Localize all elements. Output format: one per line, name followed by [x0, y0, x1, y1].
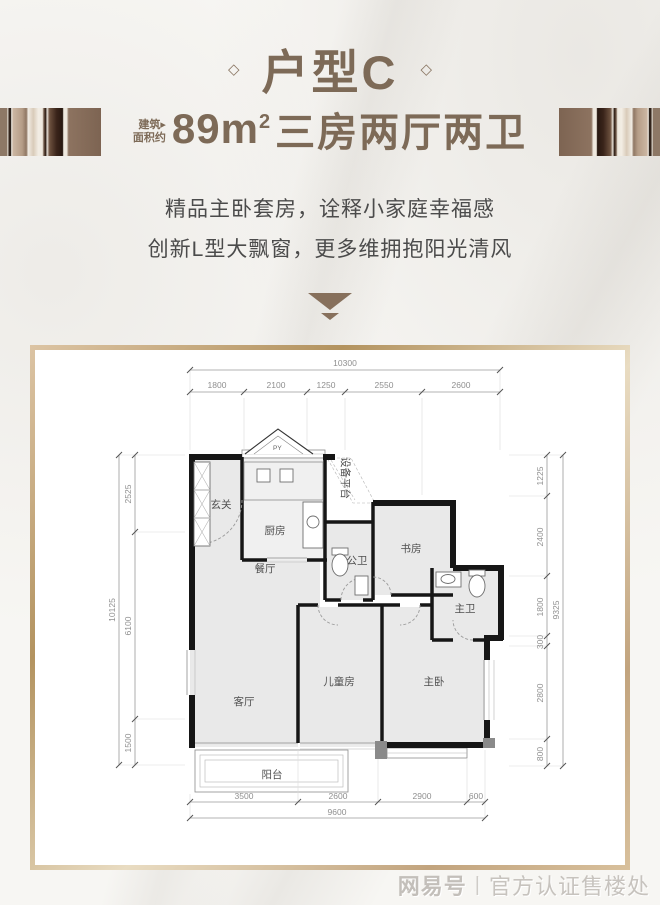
down-arrow-icon [0, 293, 660, 320]
room-label-public-bath: 公卫 [347, 555, 368, 567]
svg-text:10125: 10125 [107, 598, 117, 622]
room-label-entry: 玄关 [211, 498, 232, 511]
svg-text:2525: 2525 [123, 484, 133, 503]
diamond-icon: ◇ [228, 60, 240, 78]
watermark-text: 官方认证售楼处 [489, 869, 650, 901]
room-label-children: 儿童房 [323, 675, 355, 688]
wall-block [375, 741, 387, 759]
page-title-row: ◇ 户型C ◇ [0, 34, 660, 103]
svg-text:1800: 1800 [535, 597, 545, 616]
svg-text:1225: 1225 [535, 466, 545, 485]
svg-text:9600: 9600 [328, 807, 347, 817]
floor-plan-frame: PY [30, 345, 630, 870]
page-title: 户型C [262, 34, 399, 103]
room-label-study: 书房 [401, 542, 422, 555]
svg-text:1500: 1500 [123, 733, 133, 752]
svg-text:300: 300 [535, 635, 545, 649]
area-value: 89m2 [172, 105, 271, 153]
watermark: 网易号 | 官方认证售楼处 [398, 869, 650, 901]
svg-text:2800: 2800 [535, 683, 545, 702]
svg-text:10300: 10300 [333, 358, 357, 368]
room-label-master-bath: 主卫 [455, 603, 476, 615]
wall-block [483, 738, 495, 748]
room-label-balcony: 阳台 [262, 768, 283, 781]
svg-text:3500: 3500 [235, 791, 254, 801]
svg-text:9325: 9325 [551, 600, 561, 619]
watermark-divider: | [475, 874, 481, 897]
svg-text:2900: 2900 [413, 791, 432, 801]
svg-text:2400: 2400 [535, 527, 545, 546]
room-label-living: 客厅 [234, 695, 255, 708]
arrow-right-icon: ▸ [160, 119, 166, 131]
svg-text:1250: 1250 [317, 380, 336, 390]
svg-text:2600: 2600 [329, 791, 348, 801]
flue: PY [245, 429, 313, 454]
floor-plan: PY [35, 350, 625, 865]
subtitle-row: 建筑▸ 面积约 89m2 三房两厅两卫 [0, 98, 660, 160]
svg-text:800: 800 [535, 747, 545, 761]
area-prefix: 建筑▸ 面积约 [133, 119, 166, 145]
room-label-dining: 餐厅 [255, 562, 276, 575]
svg-text:2550: 2550 [375, 380, 394, 390]
svg-text:6100: 6100 [123, 616, 133, 635]
diamond-icon: ◇ [420, 60, 432, 78]
flue-label: PY [273, 445, 282, 452]
svg-text:2600: 2600 [452, 380, 471, 390]
description: 精品主卧套房，诠释小家庭幸福感 创新L型大飘窗，更多维拥抱阳光清风 [0, 190, 660, 270]
svg-text:600: 600 [469, 791, 483, 801]
description-line2: 创新L型大飘窗，更多维拥抱阳光清风 [0, 230, 660, 270]
layout-text: 三房两厅两卫 [275, 100, 527, 158]
room-label-equipment: 设备平台 [339, 457, 352, 499]
watermark-logo: 网易号 [398, 869, 467, 901]
svg-text:2100: 2100 [267, 380, 286, 390]
svg-text:1800: 1800 [208, 380, 227, 390]
room-label-master-bed: 主卧 [424, 675, 445, 688]
description-line1: 精品主卧套房，诠释小家庭幸福感 [0, 190, 660, 230]
room-label-kitchen: 厨房 [265, 524, 286, 537]
